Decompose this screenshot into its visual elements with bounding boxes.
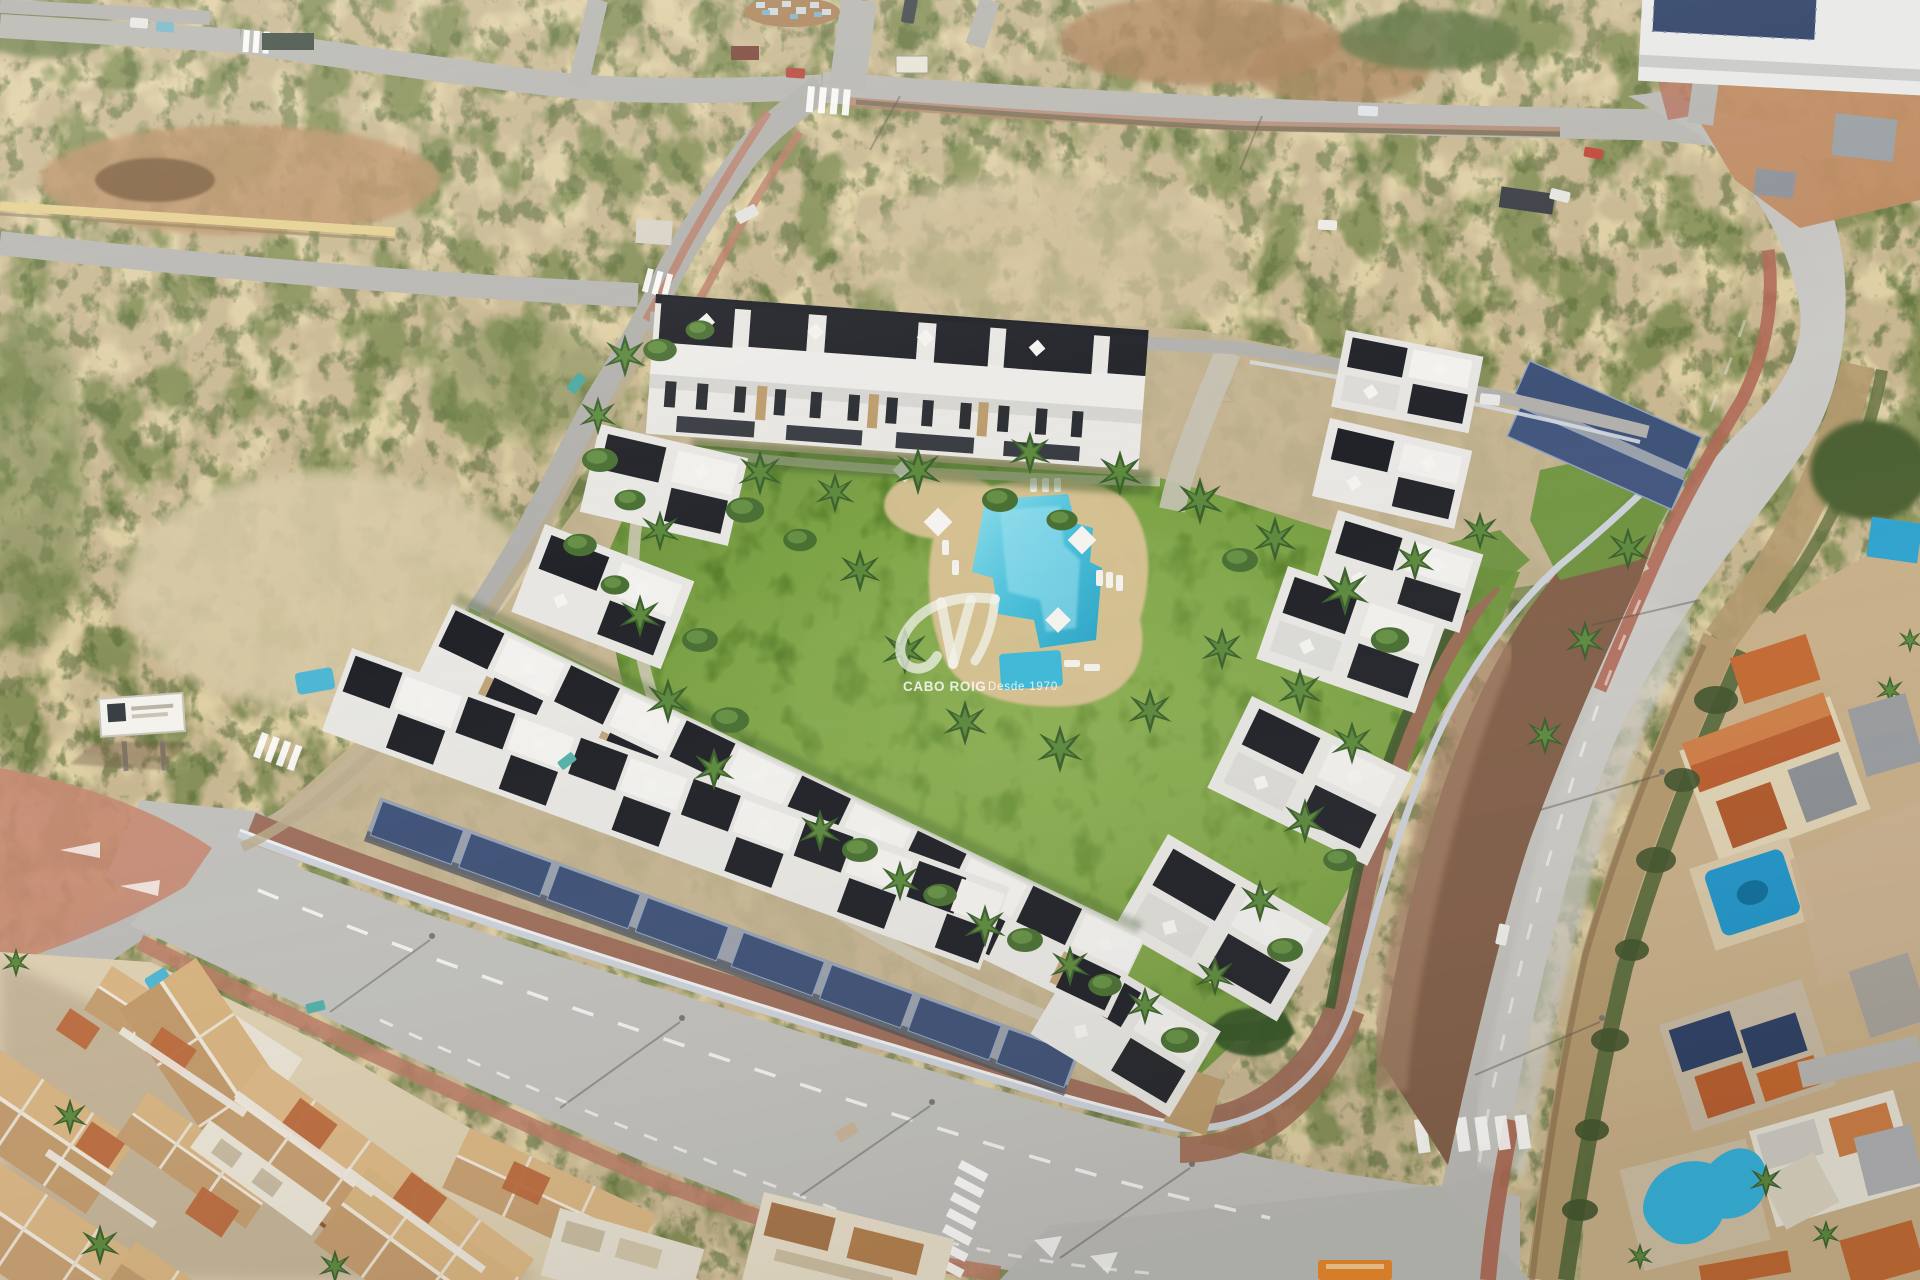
svg-text:Desde 1970: Desde 1970	[988, 681, 1058, 693]
svg-text:CABO ROIG: CABO ROIG	[903, 679, 986, 694]
